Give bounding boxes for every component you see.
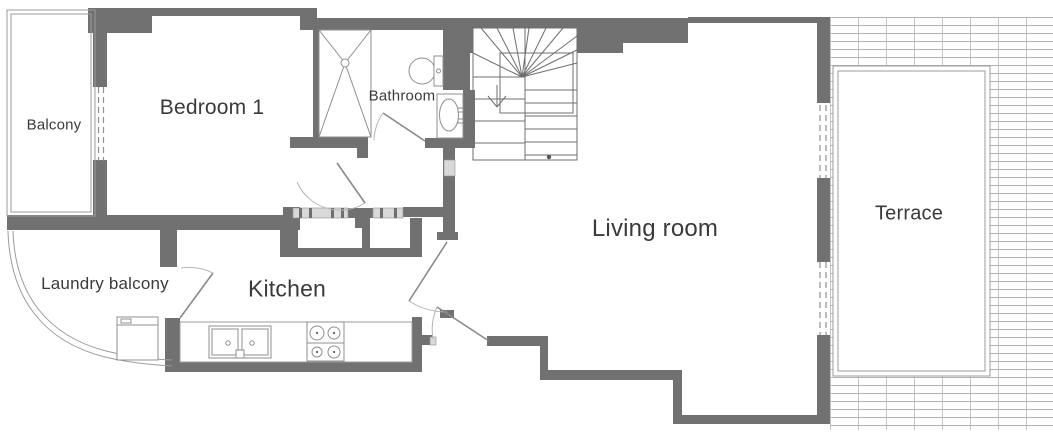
bedroom-door [297,163,365,210]
room-label-kitchen: Kitchen [248,276,326,303]
balcony-outline [7,10,95,216]
laundry-door [180,267,213,318]
stove [307,322,344,361]
shower [319,30,371,137]
bedroom-interior-window-2 [373,208,403,218]
hallway-wall-window [444,160,455,176]
room-label-laundry-balcony: Laundry balcony [41,274,169,294]
entry-door [430,307,489,345]
bathroom-door [374,113,425,141]
kitchen-sink [209,326,271,358]
balcony-window [99,87,104,161]
room-label-bedroom-1: Bedroom 1 [160,96,265,120]
stair-direction-arrow [488,85,506,107]
toilet [409,56,443,86]
room-label-bathroom: Bathroom [369,88,436,105]
washing-machine [117,317,158,360]
room-label-balcony: Balcony [27,117,82,134]
living-terrace-window-1 [820,105,826,178]
staircase [473,28,577,160]
living-terrace-window-2 [820,262,826,335]
bedroom-interior-window-1 [293,208,348,218]
floor-plan: Balcony Bedroom 1 Bathroom Laundry balco… [0,0,1053,432]
room-label-terrace: Terrace [875,203,943,226]
bathroom-sink [437,94,463,138]
room-label-living-room: Living room [592,215,718,243]
